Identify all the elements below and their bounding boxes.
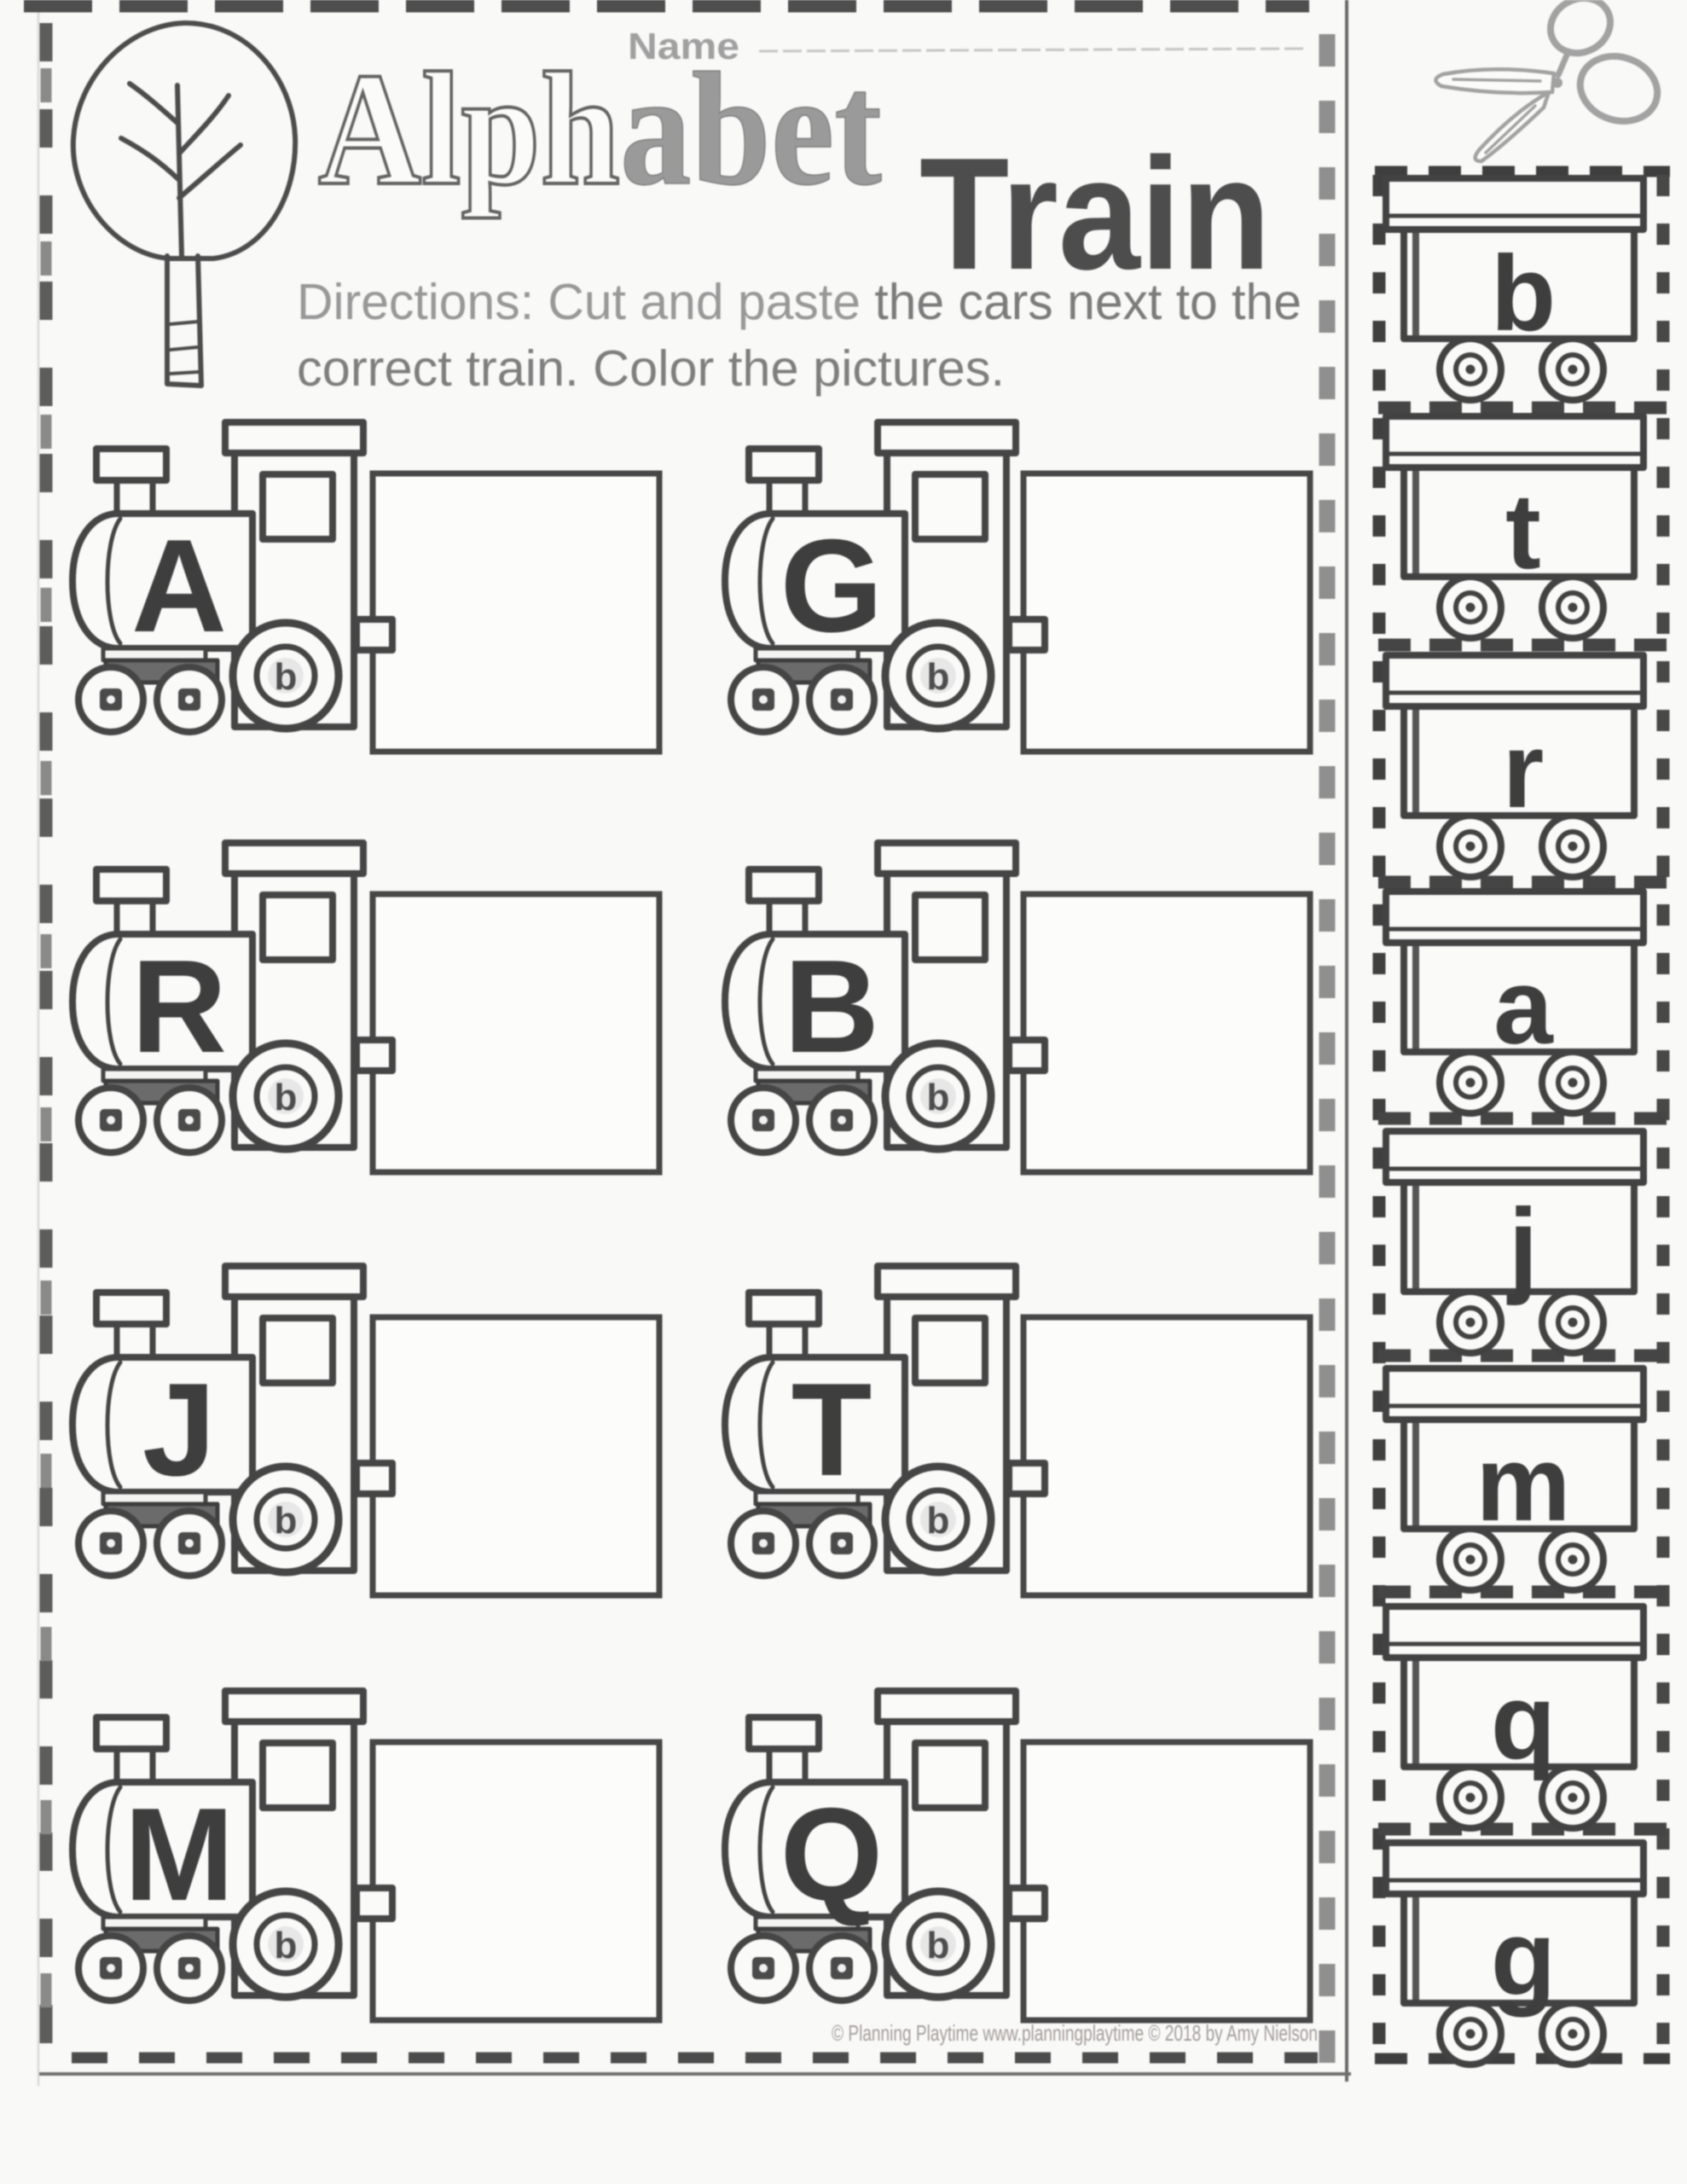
svg-text:R: R xyxy=(131,932,227,1080)
svg-text:Directions: Cut and paste the: Directions: Cut and paste the cars next … xyxy=(297,274,1301,330)
svg-text:j: j xyxy=(1507,1188,1539,1306)
svg-text:m: m xyxy=(1475,1425,1570,1543)
svg-text:q: q xyxy=(1491,1663,1556,1781)
svg-text:T: T xyxy=(791,1356,872,1503)
svg-text:Alphabet: Alphabet xyxy=(318,40,882,219)
svg-text:b: b xyxy=(1491,235,1556,353)
svg-text:© Planning Playtime www.planni: © Planning Playtime www.planningplaytime… xyxy=(832,2020,1318,2046)
svg-text:t: t xyxy=(1505,473,1541,591)
svg-text:B: B xyxy=(784,932,879,1080)
svg-text:G: G xyxy=(780,512,884,659)
svg-text:a: a xyxy=(1493,948,1554,1066)
svg-text:Q: Q xyxy=(780,1780,884,1928)
svg-text:correct train. Color the pictu: correct train. Color the pictures. xyxy=(297,340,1005,397)
svg-text:g: g xyxy=(1491,1899,1556,2018)
svg-text:M: M xyxy=(124,1780,234,1928)
svg-text:J: J xyxy=(142,1356,216,1503)
svg-text:A: A xyxy=(131,512,227,659)
svg-text:r: r xyxy=(1503,712,1545,830)
